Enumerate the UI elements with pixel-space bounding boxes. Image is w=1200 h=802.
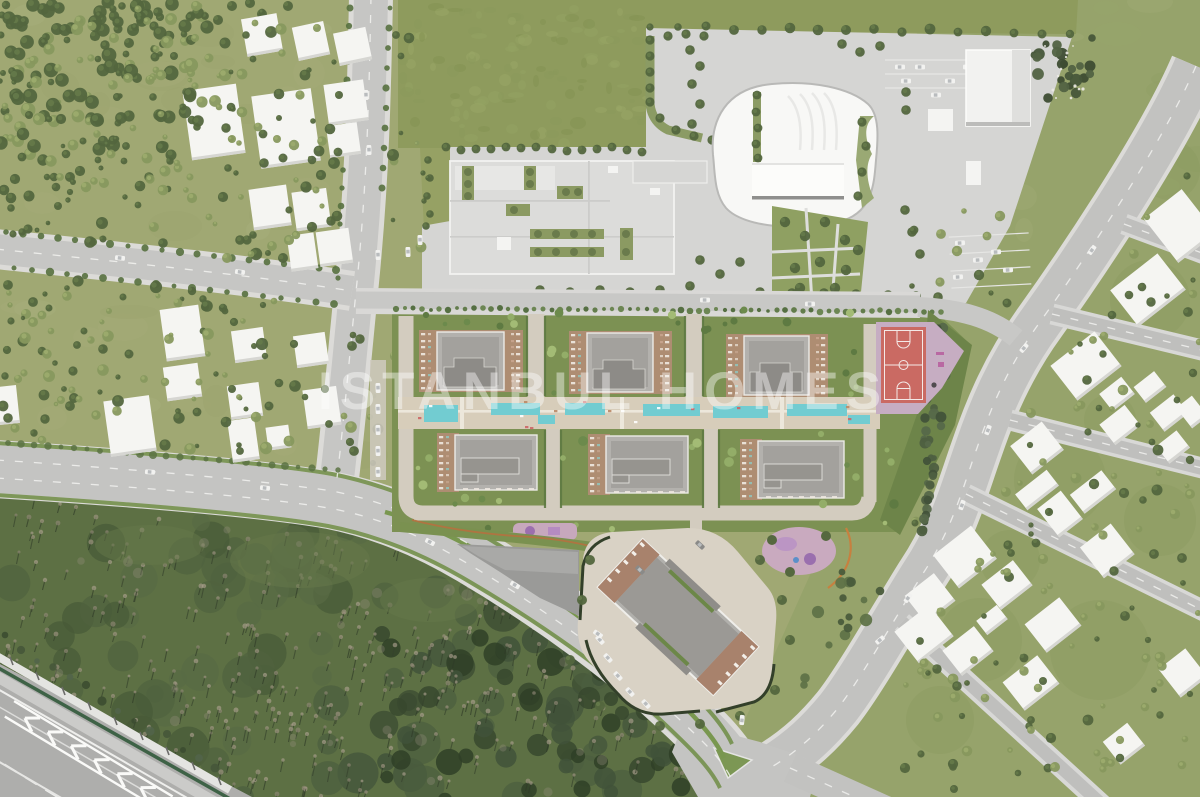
svg-text:ISTANBUL HOMES: ISTANBUL HOMES (318, 362, 888, 421)
